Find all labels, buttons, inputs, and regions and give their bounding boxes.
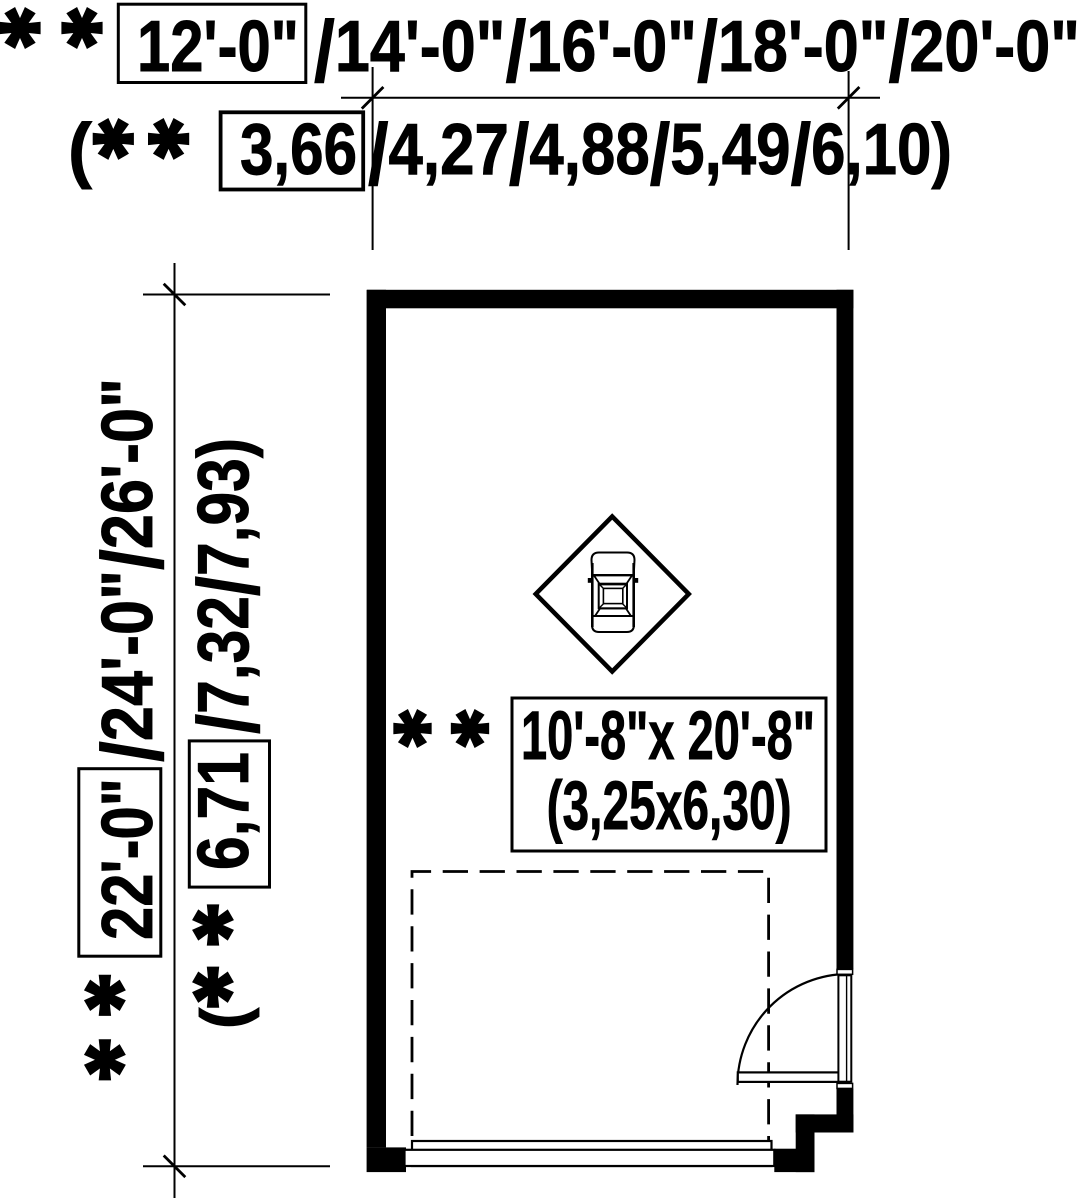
svg-text:(: ( (68, 110, 92, 190)
svg-text:10'-8"x 20'-8": 10'-8"x 20'-8" (521, 697, 815, 774)
svg-text:3,66: 3,66 (240, 110, 357, 190)
svg-text:/7,32/7,93): /7,32/7,93) (181, 438, 277, 734)
svg-text:22'-0": 22'-0" (88, 778, 168, 940)
svg-text:6,71: 6,71 (184, 752, 264, 870)
svg-text:(: ( (188, 1007, 260, 1029)
svg-text:/14'-0"/16'-0"/18'-0"/20'-0": /14'-0"/16'-0"/18'-0"/20'-0" (314, 4, 1080, 100)
svg-text:/24'-0"/26'-0": /24'-0"/26'-0" (85, 378, 181, 762)
svg-text:/4,27/4,88/5,49/6,10): /4,27/4,88/5,49/6,10) (368, 107, 952, 203)
svg-text:12'-0": 12'-0" (137, 7, 299, 87)
svg-text:(3,25x6,30): (3,25x6,30) (547, 767, 792, 844)
